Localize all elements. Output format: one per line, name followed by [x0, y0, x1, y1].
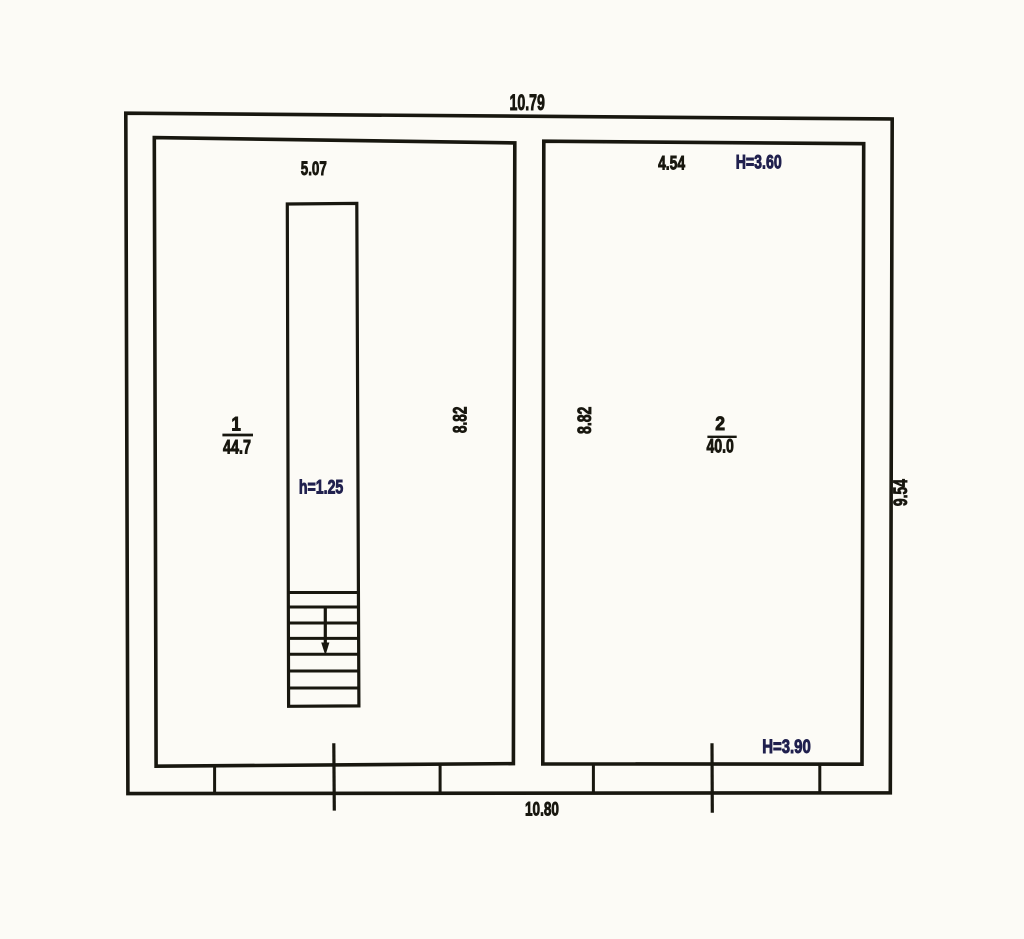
svg-text:40.0: 40.0 [707, 437, 734, 458]
svg-text:10.79: 10.79 [509, 90, 545, 115]
svg-text:9.54: 9.54 [891, 479, 912, 506]
svg-text:8.82: 8.82 [575, 407, 596, 434]
svg-text:1: 1 [231, 414, 241, 435]
svg-text:H=3.90: H=3.90 [762, 737, 811, 758]
svg-text:2: 2 [715, 414, 725, 435]
svg-text:4.54: 4.54 [658, 153, 685, 174]
svg-text:H=3.60: H=3.60 [736, 153, 782, 174]
svg-text:8.82: 8.82 [450, 407, 471, 434]
svg-text:44.7: 44.7 [223, 437, 251, 458]
svg-text:10.80: 10.80 [525, 799, 559, 821]
svg-text:5.07: 5.07 [301, 159, 327, 180]
svg-text:h=1.25: h=1.25 [299, 478, 344, 499]
